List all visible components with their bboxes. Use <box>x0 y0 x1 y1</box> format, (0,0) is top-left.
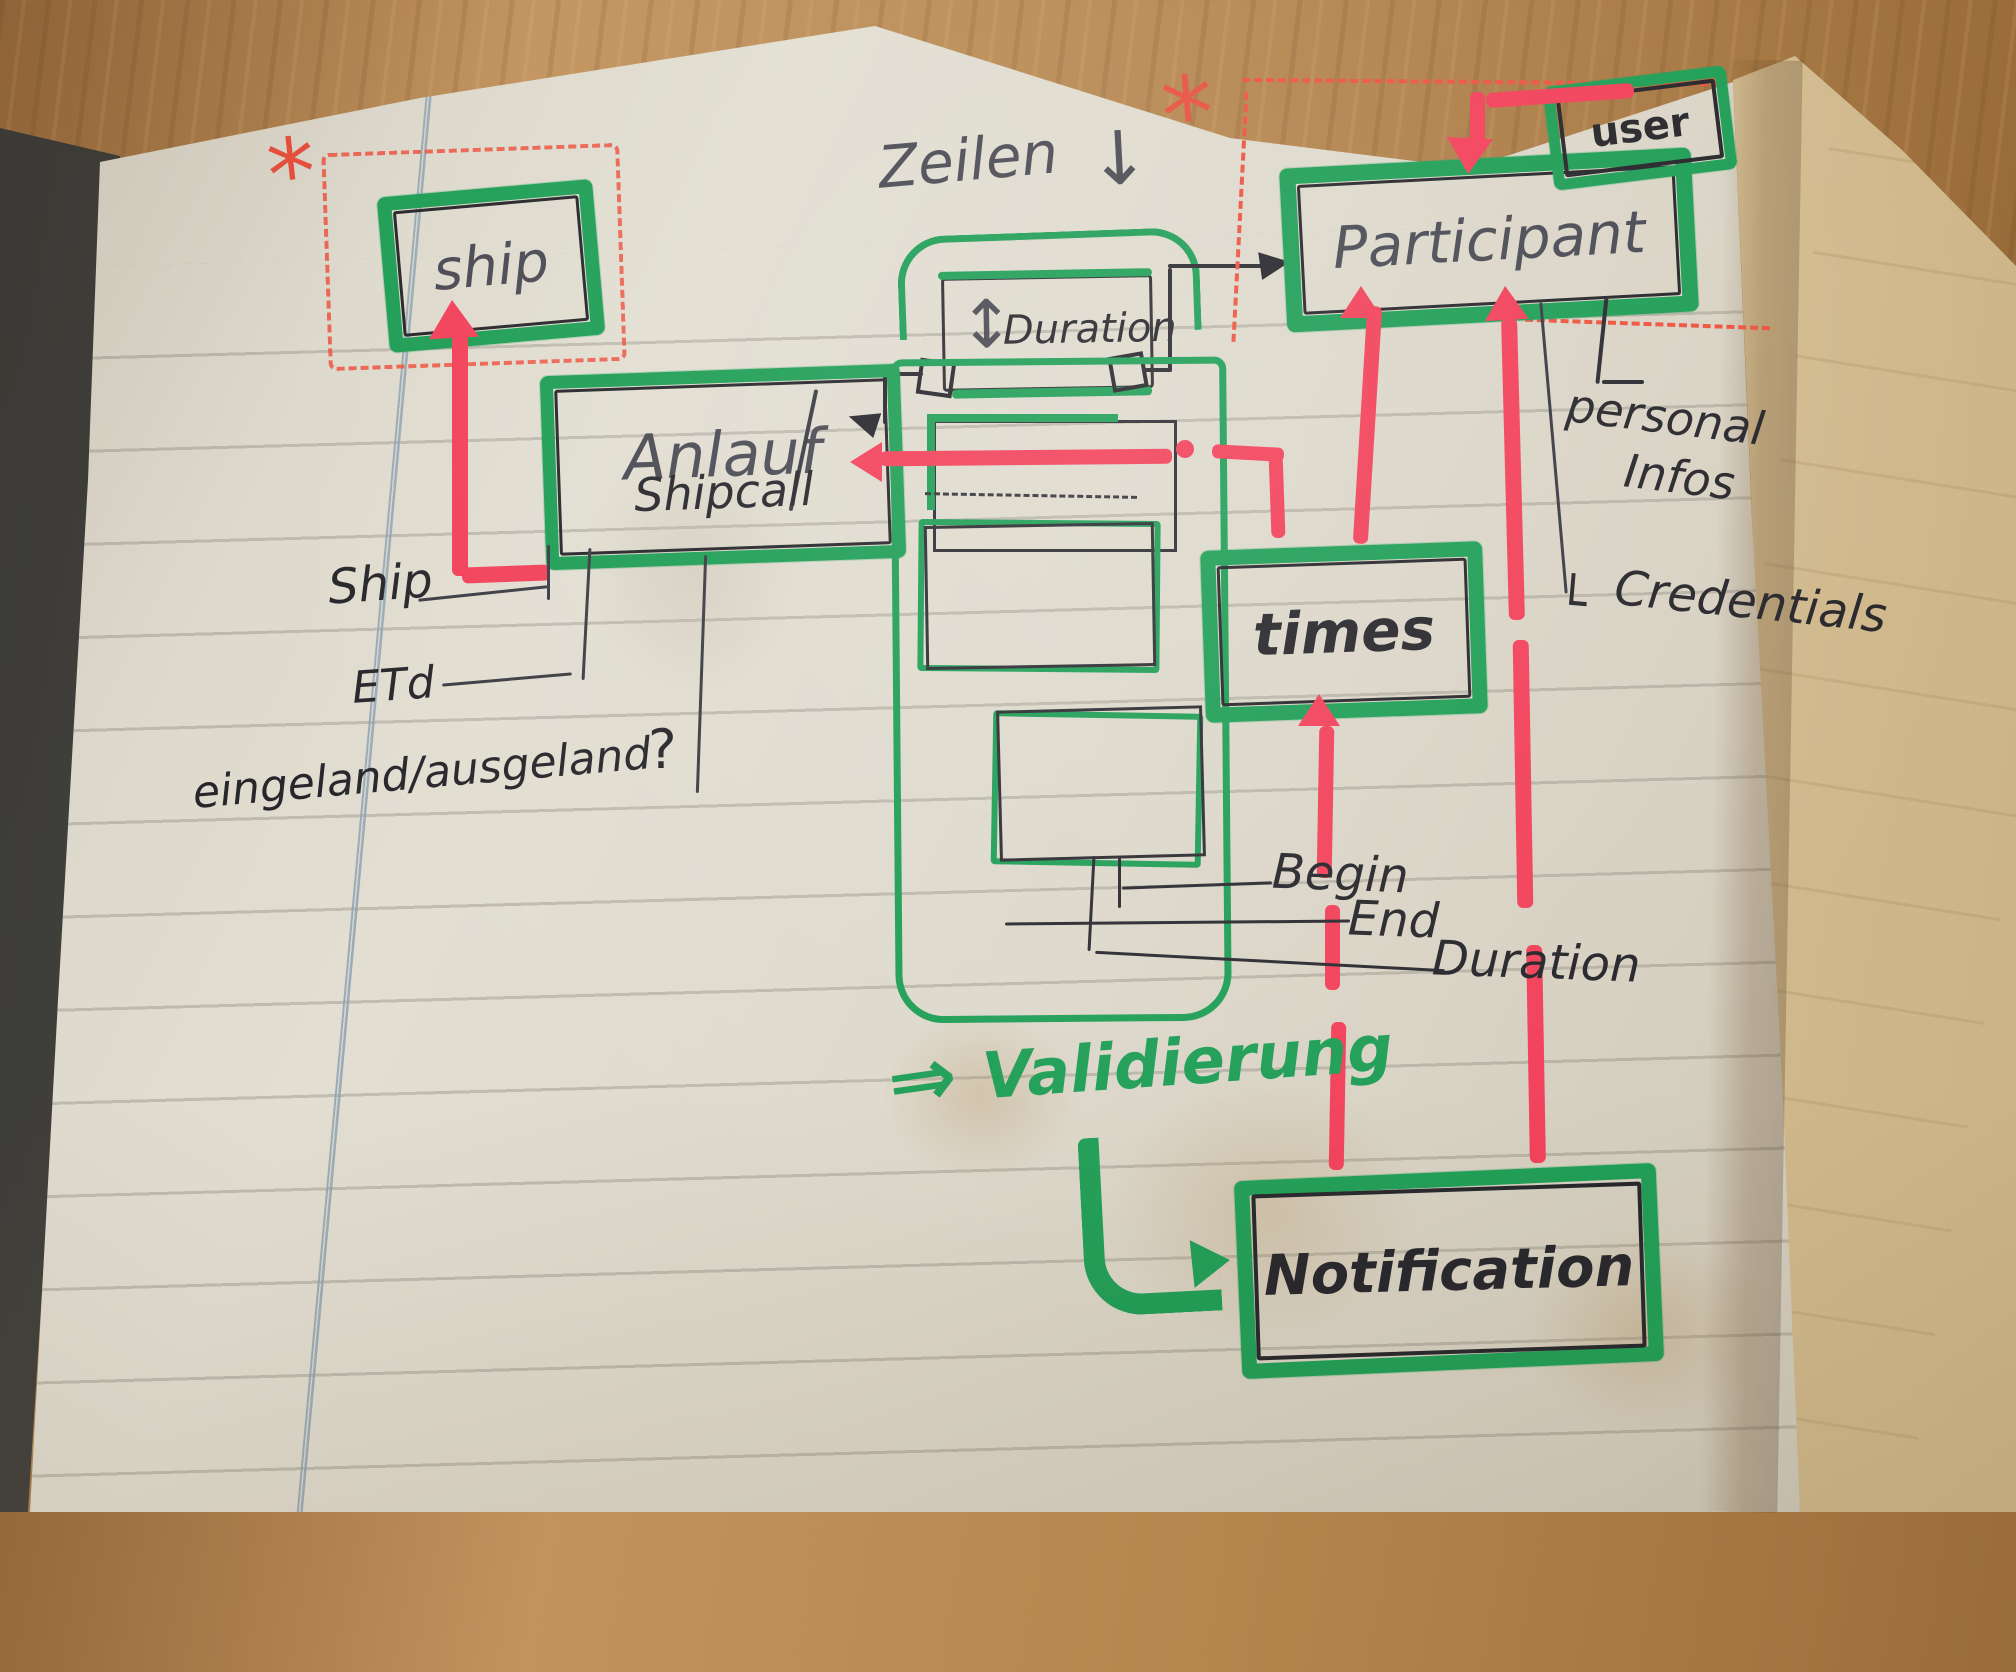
ship-attr-label: Ship <box>326 552 434 615</box>
red-arrowhead-up-into-participant-right <box>1483 285 1529 321</box>
attr-hook-times-2 <box>1118 856 1121 908</box>
end-label: End <box>1347 890 1440 949</box>
duration-attr-label: Duration <box>1431 930 1641 993</box>
red-arrow-list-to-anlauf-shaft <box>880 449 1172 467</box>
validierung-implies-arrow-icon: ⇒ <box>882 1028 963 1132</box>
red-arrow-anlauf-to-ship <box>462 564 551 583</box>
ship-box: ship <box>377 179 606 353</box>
inout-question-mark: ? <box>648 718 677 781</box>
asterisk-marker-right: * <box>1157 52 1219 178</box>
list-item-3 <box>996 705 1206 861</box>
green-curved-arrow <box>1077 1132 1222 1318</box>
red-arrowhead-up-into-ship <box>427 299 479 340</box>
black-connector-to-participant-h2 <box>1168 264 1270 268</box>
red-arrowhead-into-anlauf <box>850 442 882 482</box>
red-arrowhead-down-into-participant <box>1445 137 1493 175</box>
shipcall-label: Shipcall <box>555 427 893 557</box>
times-box: times <box>1200 541 1488 723</box>
user-box: user <box>1542 65 1737 191</box>
list-item-1-green-top <box>928 414 1118 422</box>
notebook-photo: { "photo": { "type": "photo of hand-draw… <box>0 0 2016 1512</box>
credentials-hook-icon: └ <box>1554 573 1589 633</box>
green-arrowhead-into-notification <box>1190 1236 1233 1288</box>
etd-label: ETd <box>350 657 436 714</box>
red-arrowhead-up-into-participant-left <box>1340 286 1382 318</box>
red-dot <box>1176 440 1194 458</box>
attr-hook-anlauf-1 <box>547 545 550 600</box>
zeilen-down-arrow-icon: ↓ <box>1086 114 1152 203</box>
notification-box: Notification <box>1234 1163 1664 1379</box>
red-arrow-anlauf-to-ship-shaft <box>452 318 468 576</box>
red-arrow-user-to-participant-v <box>1470 92 1485 144</box>
list-item-2 <box>924 522 1156 670</box>
duration-field-label: Duration <box>1003 305 1178 354</box>
red-arrow-notification-to-times-seg2 <box>1325 905 1340 990</box>
red-arrowhead-up-into-times <box>1298 694 1340 726</box>
ship-label: ship <box>392 194 590 338</box>
times-label: times <box>1216 557 1473 708</box>
red-elbow-to-times-v <box>1269 452 1286 538</box>
notification-label: Notification <box>1251 1182 1647 1360</box>
